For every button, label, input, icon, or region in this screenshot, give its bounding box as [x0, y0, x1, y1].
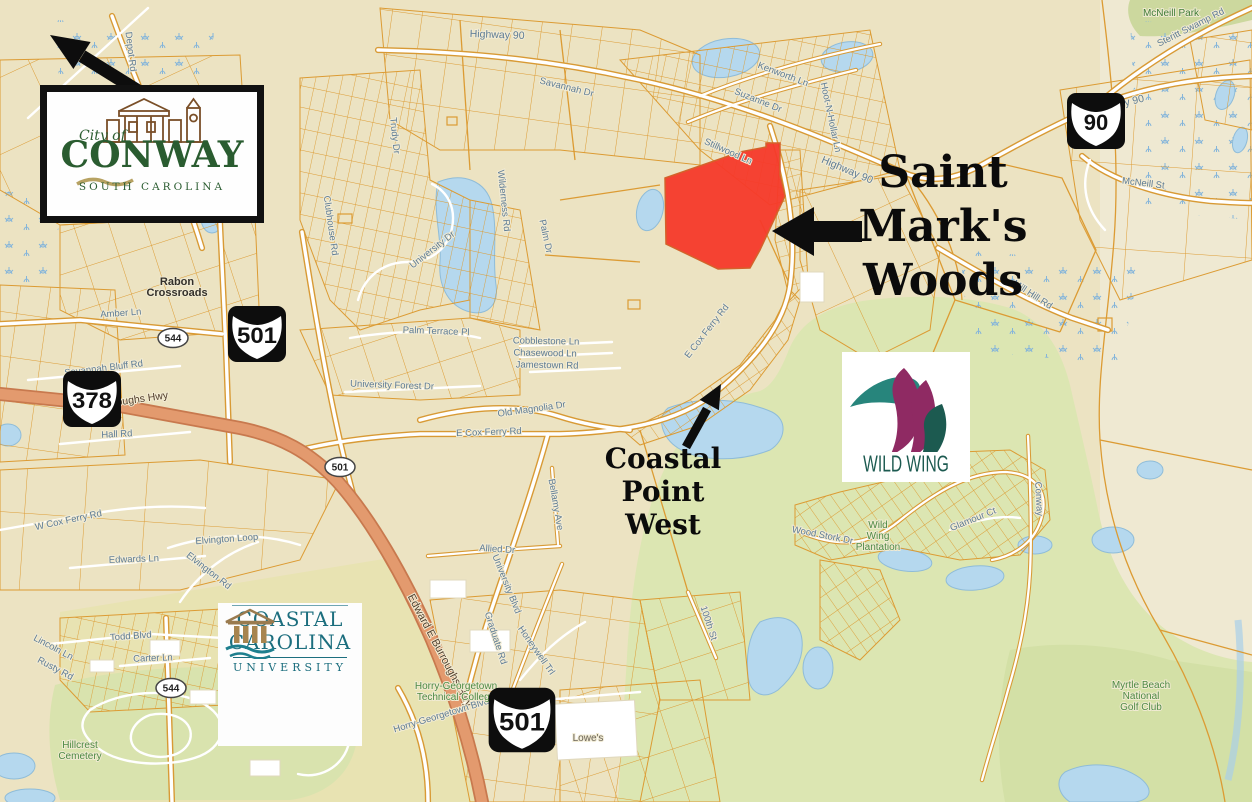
conway-name-text: CONWAY [47, 134, 257, 176]
svg-text:90: 90 [1084, 110, 1108, 135]
ccu-logo: COASTAL CAROLINA UNIVERSITY [218, 603, 362, 746]
wild-wing-bird-icon [842, 352, 970, 452]
us-route-shield: 378 [63, 371, 121, 427]
road-label: Jamestown Rd [516, 359, 579, 371]
us-route-shield: 501 [489, 688, 556, 752]
site-label-line: Saint [836, 146, 1050, 200]
state-route-marker: 544 [158, 329, 188, 348]
place-label: HillcrestCemetery [58, 740, 101, 762]
cpw-label-line: Coastal Point [566, 442, 760, 508]
conway-city-logo: City of CONWAY SOUTH CAROLINA [40, 85, 264, 223]
road-label: Edwards Ln [109, 553, 160, 566]
ccu-university-text: UNIVERSITY [233, 657, 347, 674]
svg-text:544: 544 [165, 334, 182, 345]
site-label-line: Mark's [836, 200, 1050, 254]
svg-text:544: 544 [163, 684, 180, 695]
site-label-line: Woods [836, 254, 1050, 308]
svg-text:501: 501 [237, 323, 277, 348]
cpw-label-line: West [566, 508, 760, 541]
road-label: Highway 90 [469, 28, 524, 42]
svg-text:378: 378 [72, 388, 112, 413]
us-route-shield: 90 [1067, 93, 1125, 149]
ccu-atheneum-icon [218, 607, 282, 659]
map-canvas: Highway 90Highway 90Highway 90Steritt Sw… [0, 0, 1252, 802]
state-route-marker: 501 [325, 458, 355, 477]
svg-text:501: 501 [499, 708, 545, 736]
site-annotation-label: Saint Mark's Woods [836, 146, 1050, 308]
road-label: Conway [1032, 481, 1045, 516]
ccu-rule [232, 605, 348, 606]
road-label: E Cox Ferry Rd [456, 426, 522, 439]
svg-text:501: 501 [332, 463, 349, 474]
conway-state-text: SOUTH CAROLINA [47, 181, 257, 193]
place-label: Horry-GeorgetownTechnical College [415, 681, 497, 703]
wild-wing-logo: WILD WING [842, 352, 970, 482]
road-label: Carter Ln [133, 652, 173, 664]
wild-wing-name-text: WILD WING [854, 452, 959, 479]
road-label: Chasewood Ln [513, 347, 577, 359]
place-label: McNeill Park [1143, 8, 1200, 19]
road-label: Hall Rd [101, 428, 133, 441]
us-route-shield: 501 [228, 306, 286, 362]
road-label: Cobblestone Ln [513, 335, 580, 347]
coastal-point-west-label: Coastal Point West [566, 442, 760, 541]
state-route-marker: 544 [156, 679, 186, 698]
place-label: Lowe's [573, 733, 604, 744]
road-label: Palm Terrace Pl [402, 325, 469, 338]
